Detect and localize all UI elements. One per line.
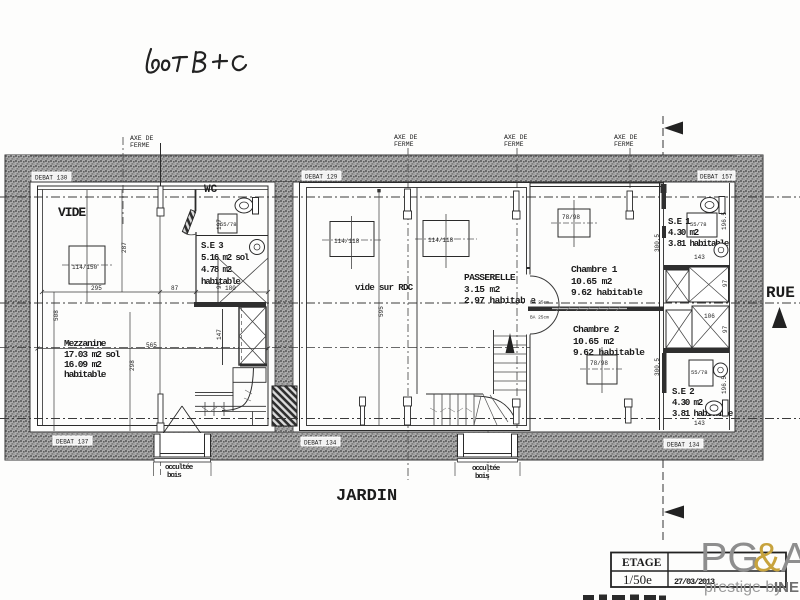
svg-text:vide sur RDC: vide sur RDC <box>355 283 414 293</box>
svg-text:10.65 m2: 10.65 m2 <box>571 276 613 287</box>
svg-text:FERME: FERME <box>394 141 414 148</box>
svg-text:DEBAT 129: DEBAT 129 <box>305 174 338 181</box>
svg-text:RUE: RUE <box>766 284 795 302</box>
svg-text:9.62 habitable: 9.62 habitable <box>573 347 645 358</box>
svg-text:180: 180 <box>225 285 236 292</box>
svg-text:143: 143 <box>694 254 705 261</box>
svg-text:Mezzanine: Mezzanine <box>64 338 107 349</box>
svg-text:147: 147 <box>216 329 223 340</box>
svg-text:WC: WC <box>204 184 218 196</box>
svg-text:DEBAT 130: DEBAT 130 <box>35 175 68 182</box>
svg-text:3.15 m2: 3.15 m2 <box>464 284 501 295</box>
svg-text:FERME: FERME <box>504 141 524 148</box>
svg-text:565: 565 <box>146 342 157 349</box>
svg-text:&: & <box>753 534 780 580</box>
svg-text:S.E 3: S.E 3 <box>201 241 223 251</box>
svg-text:bois: bois <box>475 473 490 481</box>
svg-text:4.30 m2: 4.30 m2 <box>668 228 699 238</box>
svg-text:114/150: 114/150 <box>72 264 98 271</box>
svg-text:FERME: FERME <box>130 142 150 149</box>
svg-text:114/118: 114/118 <box>428 237 454 244</box>
svg-text:55/78: 55/78 <box>690 221 707 228</box>
svg-text:5.16 m2 sol: 5.16 m2 sol <box>201 253 250 263</box>
svg-text:78/98: 78/98 <box>562 214 580 221</box>
svg-text:S.E 1: S.E 1 <box>668 217 691 227</box>
svg-text:Chambre 1: Chambre 1 <box>571 264 618 275</box>
svg-text:97: 97 <box>722 325 729 333</box>
svg-text:300.5: 300.5 <box>654 358 661 376</box>
svg-text:508: 508 <box>53 310 60 321</box>
svg-text:78/98: 78/98 <box>590 360 608 367</box>
svg-text:196.5: 196.5 <box>721 212 728 230</box>
svg-text:287: 287 <box>121 242 128 253</box>
svg-text:AXE DE: AXE DE <box>614 134 638 141</box>
svg-text:PG: PG <box>700 534 759 580</box>
svg-text:FERME: FERME <box>614 141 634 148</box>
svg-text:298: 298 <box>129 360 136 371</box>
svg-text:prestige by: prestige by <box>704 579 782 596</box>
svg-text:AXE DE: AXE DE <box>394 134 418 141</box>
svg-text:occultée: occultée <box>472 465 501 473</box>
svg-text:595: 595 <box>378 306 385 317</box>
svg-text:occultée: occultée <box>165 464 194 472</box>
svg-text:4.30 m2: 4.30 m2 <box>672 398 703 408</box>
svg-text:295: 295 <box>91 285 102 292</box>
svg-text:196.5: 196.5 <box>721 376 728 394</box>
svg-text:DEBAT 134: DEBAT 134 <box>667 442 700 449</box>
svg-text:PASSERELLE: PASSERELLE <box>464 272 516 283</box>
svg-text:AXE DE: AXE DE <box>504 134 528 141</box>
svg-text:DEBAT 137: DEBAT 137 <box>56 439 89 446</box>
svg-text:S.E 2: S.E 2 <box>672 387 694 397</box>
svg-text:55/78: 55/78 <box>691 369 708 376</box>
svg-text:9.62 habitable: 9.62 habitable <box>571 287 643 298</box>
svg-text:DEBAT 157: DEBAT 157 <box>700 174 733 181</box>
svg-text:114/118: 114/118 <box>334 238 360 245</box>
svg-text:habitable: habitable <box>64 369 107 380</box>
svg-text:AXE DE: AXE DE <box>130 135 154 142</box>
svg-text:90: 90 <box>216 281 223 289</box>
svg-text:ETAGE: ETAGE <box>622 557 662 569</box>
svg-text:1/50e: 1/50e <box>623 572 652 587</box>
svg-text:10.65 m2: 10.65 m2 <box>573 336 615 347</box>
svg-text:143: 143 <box>694 420 705 427</box>
svg-text:106: 106 <box>704 313 715 320</box>
svg-text:A: A <box>781 534 800 580</box>
svg-text:BA 25cm: BA 25cm <box>530 315 549 321</box>
svg-text:BA 25cm: BA 25cm <box>530 300 549 306</box>
svg-text:DEBAT 134: DEBAT 134 <box>304 440 337 447</box>
svg-text:Chambre 2: Chambre 2 <box>573 324 620 335</box>
svg-text:VIDE: VIDE <box>58 205 86 220</box>
svg-text:JARDIN: JARDIN <box>336 487 397 506</box>
svg-text:300.5: 300.5 <box>654 234 661 252</box>
svg-text:197: 197 <box>216 219 223 230</box>
svg-text:97: 97 <box>722 279 729 287</box>
svg-text:bois: bois <box>167 472 182 480</box>
svg-text:INE: INE <box>774 579 799 596</box>
svg-text:87: 87 <box>171 285 179 292</box>
